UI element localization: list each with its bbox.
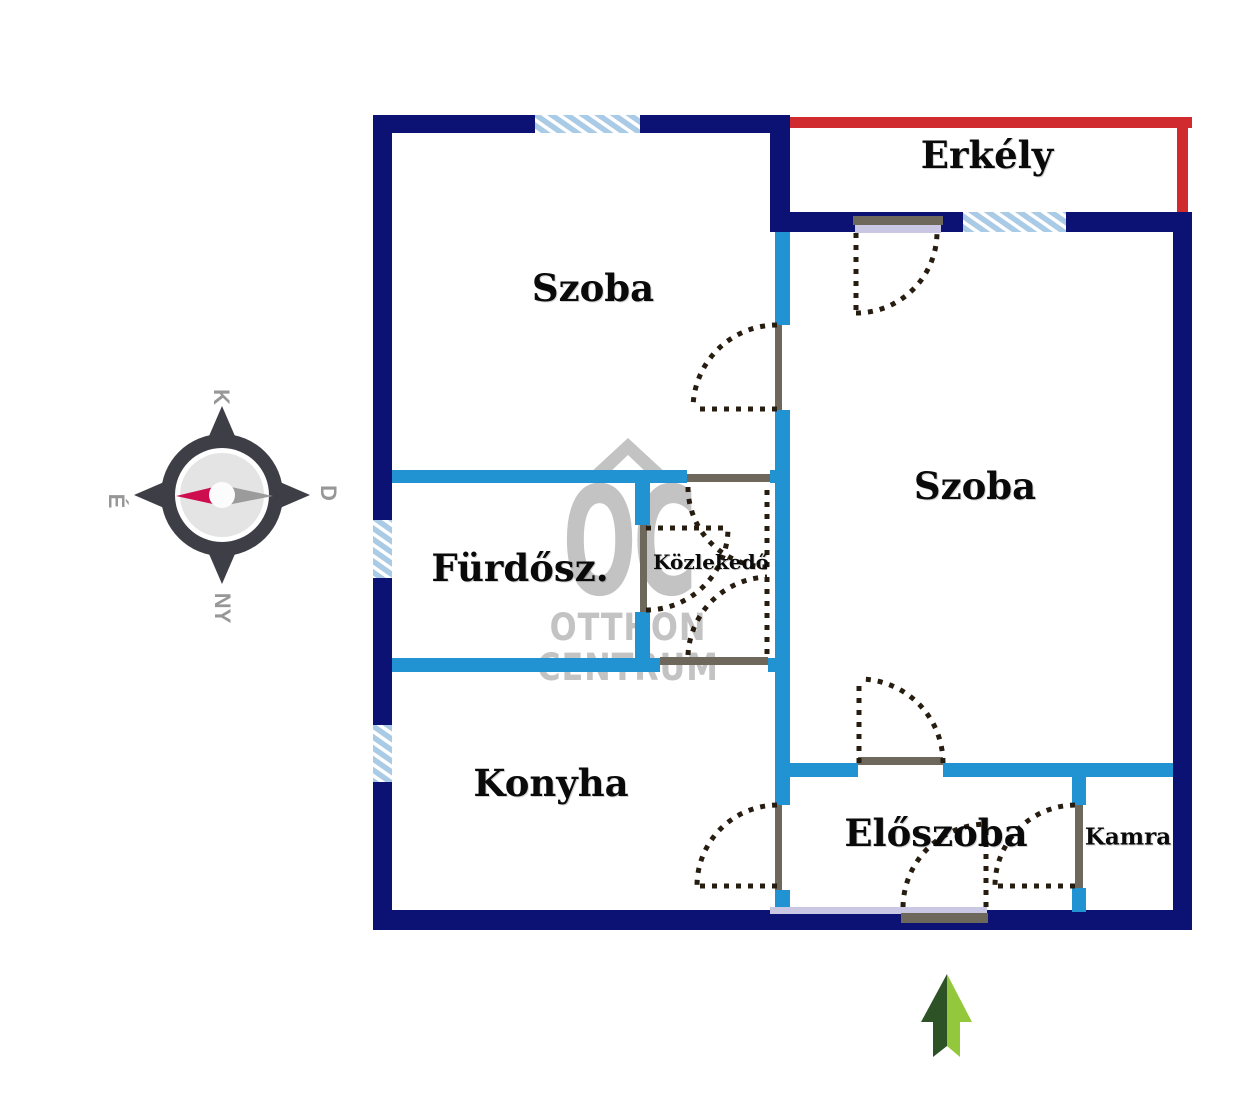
balcony-outline [788,117,1192,212]
door-szoba-eloszoba [858,679,943,765]
window-konyha [373,725,392,782]
door-szoba-kozlekedo [687,474,770,568]
window-szoba-right [963,212,1066,232]
floorplan-page: OC OTTHON CENTRUM [0,0,1260,1120]
door-konyha-eloszoba [697,805,782,890]
door-entrance [770,824,988,923]
floorplan-drawing [0,0,1260,1120]
door-szoba-szoba [693,325,782,410]
window-szoba-top [535,115,640,133]
door-kamra [995,805,1083,888]
window-furdoszoba [373,520,392,578]
entrance-arrow-icon [921,974,972,1057]
compass-rose [134,406,310,584]
interior-walls [392,232,1173,912]
door-konyha-kozlekedo [660,577,768,665]
door-balcony [853,216,943,313]
